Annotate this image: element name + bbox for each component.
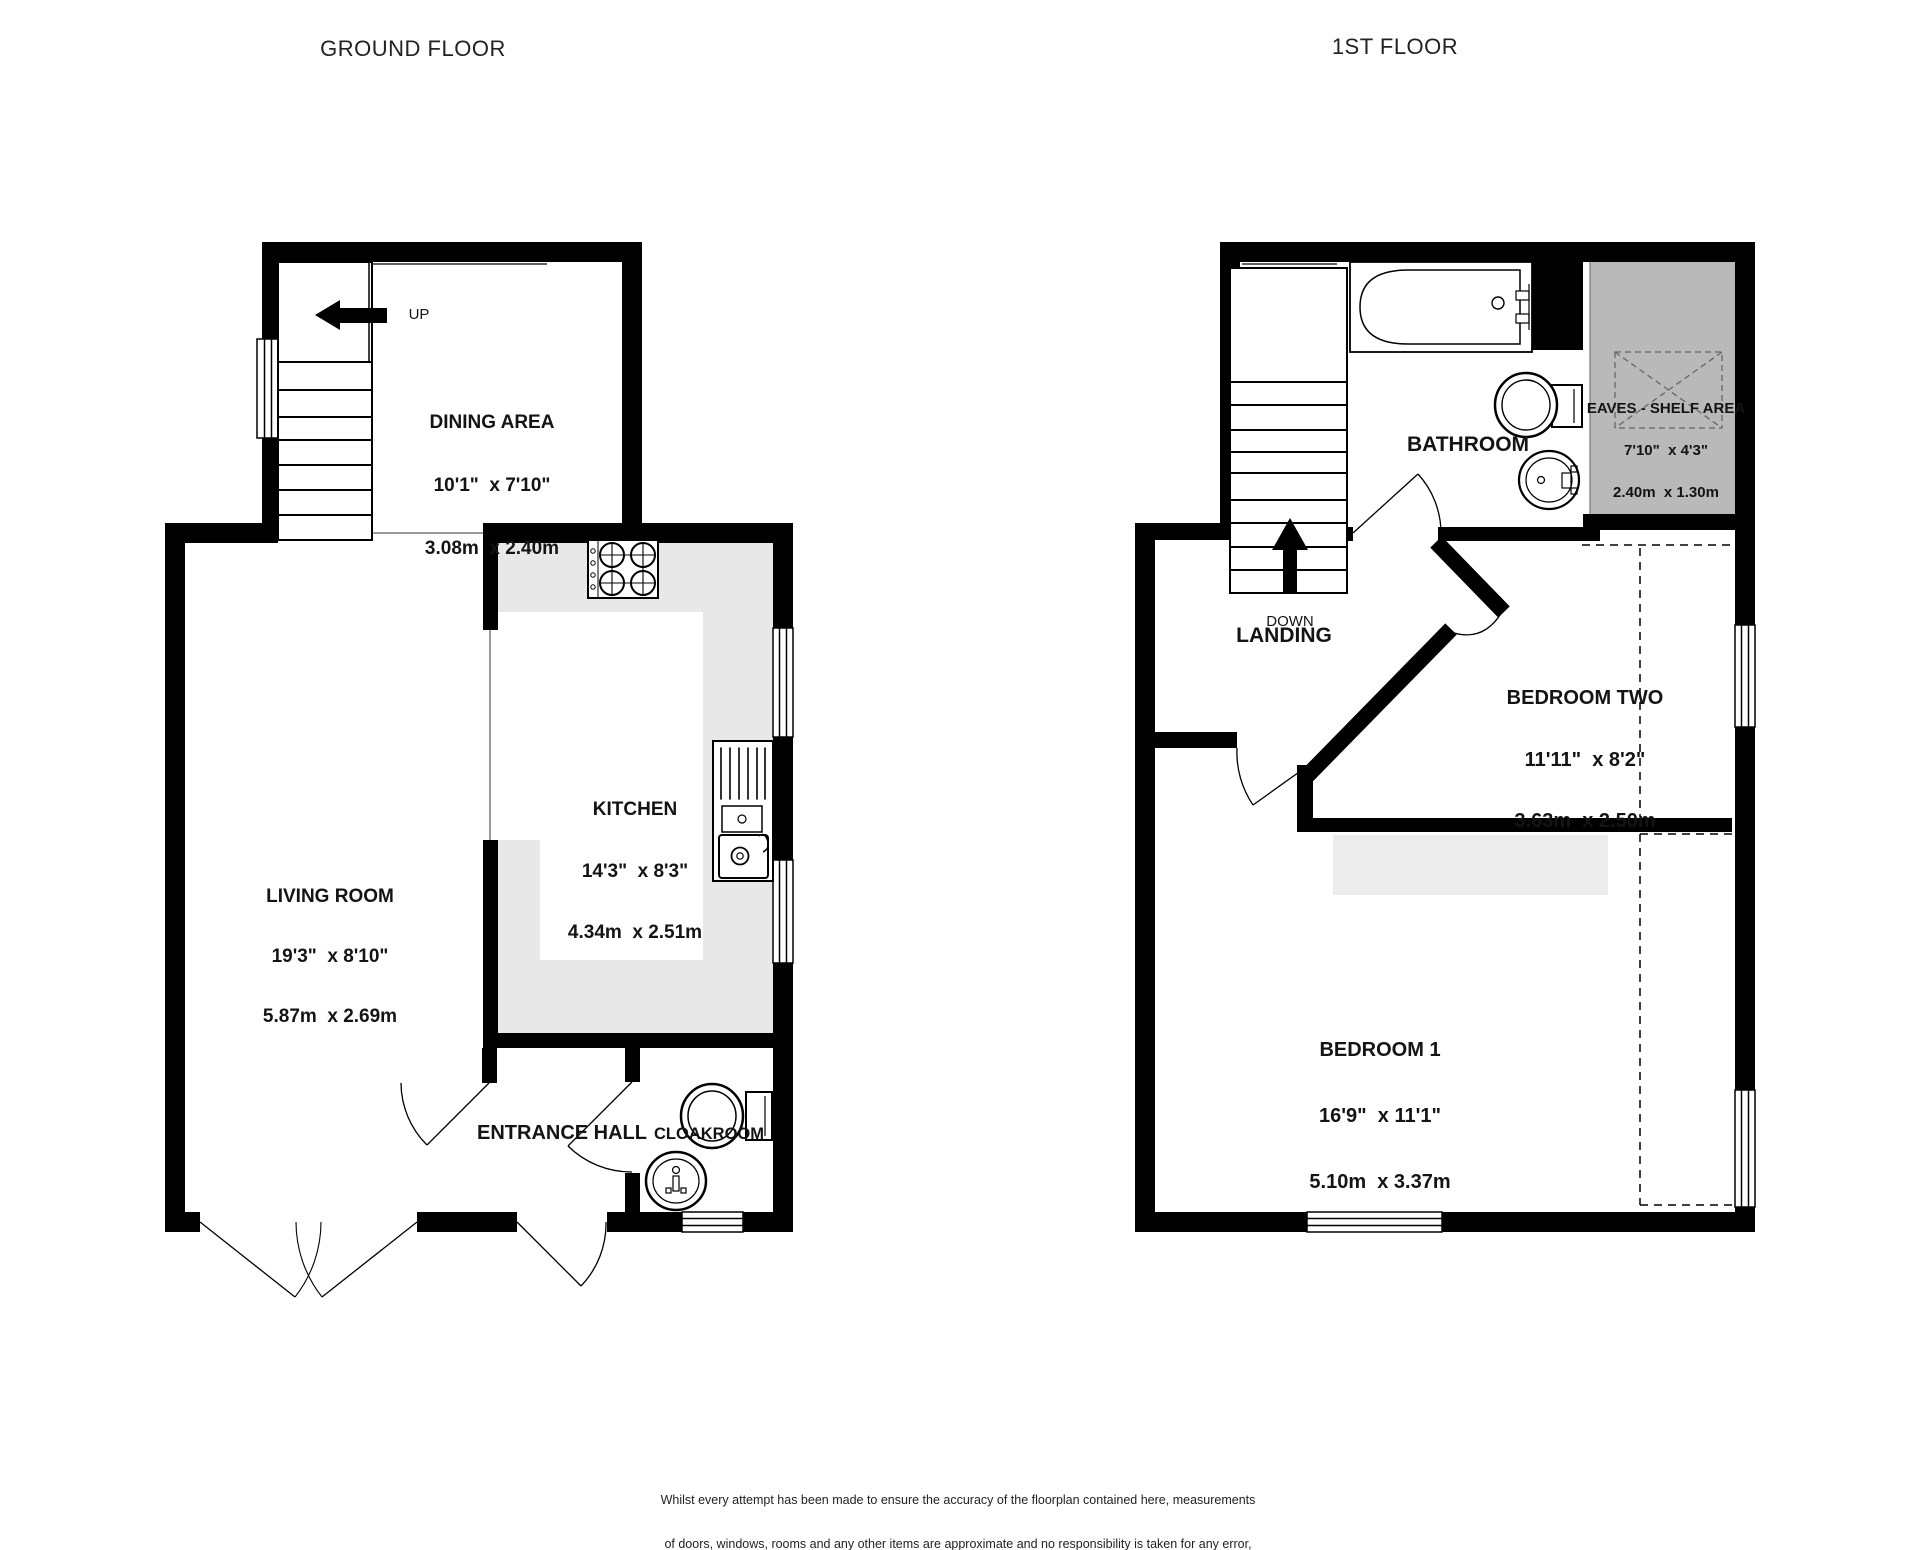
room-size-imperial: 16'9" x 11'1"	[1309, 1105, 1450, 1127]
disclaimer-line: Whilst every attempt has been made to en…	[657, 1493, 1259, 1508]
hob-icon	[588, 540, 658, 598]
bathtub-icon	[1350, 262, 1532, 352]
room-label-dining: DINING AREA 10'1" x 7'10" 3.08m x 2.40m	[425, 370, 559, 580]
room-name: KITCHEN	[568, 800, 702, 821]
room-size-imperial: 19'3" x 8'10"	[263, 947, 397, 967]
room-label-bedroom1: BEDROOM 1 16'9" x 11'1" 5.10m x 3.37m	[1309, 995, 1450, 1215]
room-size-metric: 5.10m x 3.37m	[1309, 1171, 1450, 1193]
room-size-metric: 2.40m x 1.30m	[1587, 486, 1745, 500]
disclaimer-line: of doors, windows, rooms and any other i…	[657, 1537, 1259, 1550]
floorplan-page: GROUND FLOOR 1ST FLOOR UP DINING AREA 10…	[0, 0, 1920, 1550]
room-size-imperial: 11'11" x 8'2"	[1507, 750, 1664, 771]
room-label-kitchen: KITCHEN 14'3" x 8'3" 4.34m x 2.51m	[568, 759, 702, 964]
room-size-imperial: 7'10" x 4'3"	[1587, 444, 1745, 458]
room-size-imperial: 10'1" x 7'10"	[425, 475, 559, 496]
ground-floor-title: GROUND FLOOR	[320, 36, 506, 62]
room-size-imperial: 14'3" x 8'3"	[568, 862, 702, 883]
room-label-bathroom: BATHROOM	[1407, 433, 1529, 457]
stairs-down-icon	[1230, 268, 1347, 593]
room-size-metric: 4.34m x 2.51m	[568, 923, 702, 944]
room-label-bedroom2: BEDROOM TWO 11'11" x 8'2" 3.63m x 2.50m	[1507, 647, 1664, 852]
basin-icon	[646, 1152, 706, 1210]
sink-icon	[713, 741, 773, 881]
landing-label: LANDING	[1236, 624, 1332, 648]
stairs-up-icon	[278, 262, 387, 540]
up-label: UP	[409, 306, 430, 323]
room-size-metric: 5.87m x 2.69m	[263, 1007, 397, 1027]
door-arcs	[200, 1082, 632, 1297]
room-label-eaves: EAVES - SHELF AREA 7'10" x 4'3" 2.40m x …	[1587, 374, 1745, 514]
room-label-cloakroom: CLOAKROOM	[654, 1125, 764, 1144]
basin-icon	[1519, 451, 1579, 509]
first-floor-title: 1ST FLOOR	[1332, 34, 1458, 60]
room-name: DINING AREA	[425, 412, 559, 433]
room-label-living: LIVING ROOM 19'3" x 8'10" 5.87m x 2.69m	[263, 847, 397, 1047]
disclaimer-text: Whilst every attempt has been made to en…	[657, 1464, 1259, 1550]
toilet-icon	[1495, 373, 1582, 437]
room-name: BEDROOM TWO	[1507, 688, 1664, 709]
room-size-metric: 3.08m x 2.40m	[425, 538, 559, 559]
room-size-metric: 3.63m x 2.50m	[1507, 811, 1664, 832]
room-name: BEDROOM 1	[1309, 1039, 1450, 1061]
room-name: LIVING ROOM	[263, 887, 397, 907]
room-label-hall: ENTRANCE HALL	[477, 1122, 647, 1144]
room-name: EAVES - SHELF AREA	[1587, 402, 1745, 416]
